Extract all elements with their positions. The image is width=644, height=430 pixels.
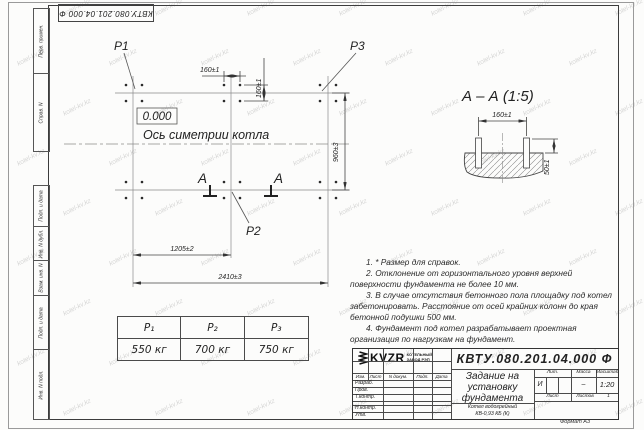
level-mark: 0.000	[143, 111, 172, 123]
scale-label: Масштаб	[596, 369, 618, 377]
margin-label: Подп. и дата	[39, 190, 45, 221]
margin-column-top: Перв. примен. Справ. N	[33, 8, 50, 152]
margin-cell: Взам. инв. N	[34, 261, 49, 296]
margin-column-bottom: Подп. и дата Инв. N дубл. Взам. инв. N П…	[33, 185, 50, 420]
load-table-value: 750 кг	[245, 339, 308, 360]
doc-title-line: установку	[451, 382, 534, 393]
margin-cell: Инв. N подл.	[34, 350, 49, 419]
embedded-bolt	[476, 138, 482, 168]
product-name-line: КВ-0,93 КБ (К)	[451, 411, 534, 418]
load-table-value: 700 кг	[181, 339, 244, 360]
margin-cell: Справ. N	[34, 74, 49, 151]
load-point-p2: P2	[246, 224, 261, 238]
section-title: А – А (1:5)	[461, 88, 534, 105]
doc-number: КВТУ.080.201.04.000 Ф	[451, 349, 618, 369]
margin-label: Взам. инв. N	[39, 263, 45, 292]
section-letter-right: A	[273, 171, 283, 186]
margin-label: Инв. N дубл.	[39, 229, 45, 258]
note-1: 1. * Размер для справок.	[350, 257, 620, 268]
margin-cell: Подп. и дата	[34, 296, 49, 350]
dim-section-protrusion: 50±1	[544, 159, 551, 175]
lit-value: И	[534, 377, 546, 393]
corner-stamp-text: КВТУ.080.201.04.000 Ф	[59, 9, 153, 18]
coil-icon	[358, 351, 368, 365]
title-block: КВТУ.080.201.04.000 Ф Изм. Лист N докум.…	[352, 348, 619, 420]
section-view: А – А (1:5) 160±1 50±1	[440, 75, 630, 210]
dim-half-width: 1205±2	[170, 246, 193, 253]
axis-label: Ось симетрии котла	[143, 128, 269, 142]
sheet-label: Лист	[534, 393, 571, 401]
doc-title-line: Задание на	[451, 371, 534, 382]
dim-section-spacing: 160±1	[492, 112, 512, 119]
dim-height: 960±3	[333, 142, 340, 162]
drawing-sheet: kotel-kv.kzkotel-kv.kzkotel-kv.kzkotel-k…	[0, 0, 644, 430]
doc-title-line: фундамента	[451, 393, 534, 404]
margin-label: Инв. N подл.	[39, 370, 45, 399]
dim-full-width: 2410±3	[217, 274, 241, 281]
format-label: Формат А3	[543, 419, 607, 425]
lit-label: Лит.	[534, 369, 571, 377]
notes: 1. * Размер для справок. 2. Отклонение о…	[350, 257, 620, 345]
product-name-line: Котел водогрейный	[451, 404, 534, 411]
note-4: 4. Фундамент под котел разрабатывает про…	[350, 323, 620, 345]
role-prov: Пров.	[355, 387, 383, 394]
load-table-header: P₃	[245, 317, 308, 339]
dim-bolt-spacing-h: 160±1	[200, 67, 220, 74]
plan-view: 160±1 160±1 960±3 1205±2 2410±3 P1 P3 P2…	[50, 20, 390, 310]
tb-col-list: Лист	[368, 373, 383, 380]
load-table: P₁ P₂ P₃ 550 кг 700 кг 750 кг	[117, 316, 309, 361]
sheets-label: Листов	[571, 393, 599, 401]
note-2: 2. Отклонение от горизонтального уровня …	[350, 268, 620, 290]
dim-bolt-spacing-v: 160±1	[256, 78, 263, 98]
margin-cell: Перв. примен.	[34, 9, 49, 74]
logo-text: KVZR	[370, 351, 405, 365]
sheets-value: 1	[599, 393, 618, 401]
company-logo: KVZR КОТЕЛЬНЫЙ ЗАВОД РЭП	[353, 349, 437, 366]
load-table-header: P₁	[118, 317, 181, 339]
tb-col-podp: Подп.	[413, 373, 432, 380]
mass-value: –	[571, 377, 596, 393]
scale-value: 1:20	[596, 377, 618, 393]
load-table-header: P₂	[181, 317, 244, 339]
role-razrab: Разраб.	[355, 380, 383, 387]
margin-label: Справ. N	[39, 102, 45, 123]
margin-label: Перв. примен.	[39, 24, 45, 57]
load-table-value: 550 кг	[118, 339, 181, 360]
note-3: 3. В случае отсутствия бетонного пола пл…	[350, 290, 620, 323]
load-point-p3: P3	[350, 39, 365, 53]
embedded-bolt	[524, 138, 530, 168]
margin-cell: Подп. и дата	[34, 186, 49, 227]
load-point-p1: P1	[114, 39, 129, 53]
tb-col-ndoc: N докум.	[383, 373, 413, 380]
role-nkontr: Н.контр.	[355, 405, 383, 412]
section-letter-left: A	[197, 171, 207, 186]
margin-cell: Инв. N дубл.	[34, 227, 49, 261]
margin-label: Подп. и дата	[39, 307, 45, 338]
role-utv: Утв.	[355, 412, 383, 419]
tb-col-data: Дата	[432, 373, 451, 380]
tb-col-izm: Изм.	[353, 373, 368, 380]
role-tkontr: Т.контр.	[355, 394, 383, 401]
mass-label: Масса	[571, 369, 596, 377]
